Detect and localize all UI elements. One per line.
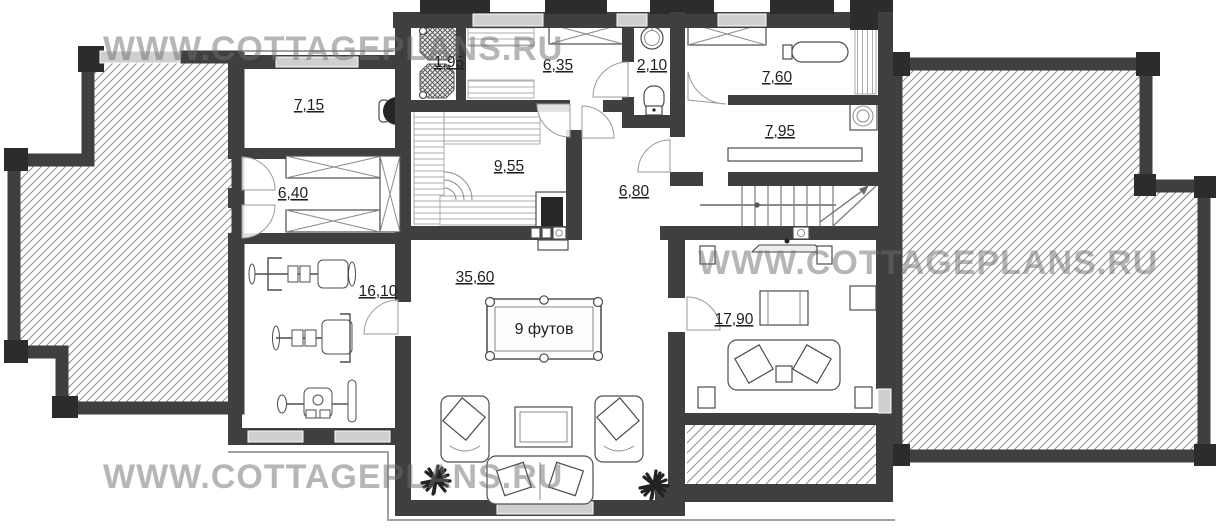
counter-795 <box>728 148 862 161</box>
stove-unit <box>379 97 397 125</box>
bench-760 <box>855 24 876 94</box>
room-label-6-40: 6,40 <box>278 185 309 202</box>
watermark-bottom: WWW.COTTAGEPLANS.RU <box>103 458 563 497</box>
room-label-7-15: 7,15 <box>294 97 324 114</box>
stair-newel-dot <box>754 202 759 207</box>
terrace-left <box>14 57 238 408</box>
billiard-table: 9 футов <box>486 296 603 362</box>
room-label-7-95: 7,95 <box>765 123 795 140</box>
armchair-left <box>441 396 489 462</box>
sauna-stove <box>536 192 568 230</box>
toilet <box>644 86 664 115</box>
room-label-2-10: 2,10 <box>637 57 668 74</box>
room-label-9-55: 9,55 <box>494 158 524 175</box>
armchair-right <box>595 396 643 462</box>
room-label-35-60: 35,60 <box>456 269 495 286</box>
sofa-theater <box>728 340 840 390</box>
room-label-6-80: 6,80 <box>619 183 650 200</box>
stair-wall-fixture <box>793 227 809 239</box>
washing-machine <box>850 103 877 130</box>
coffee-table-billiard <box>515 407 572 447</box>
room-label-7-60: 7,60 <box>762 69 793 86</box>
room-label-16-10: 16,10 <box>359 283 398 300</box>
floor-plan-page: 9 футов <box>0 0 1223 529</box>
billiard-size-label: 9 футов <box>515 321 574 338</box>
porch-hatch <box>687 425 876 484</box>
watermark-middle: WWW.COTTAGEPLANS.RU <box>698 244 1158 283</box>
coffee-table-theater <box>760 291 808 325</box>
watermark-top: WWW.COTTAGEPLANS.RU <box>103 30 563 69</box>
room-label-17-90: 17,90 <box>715 311 754 328</box>
